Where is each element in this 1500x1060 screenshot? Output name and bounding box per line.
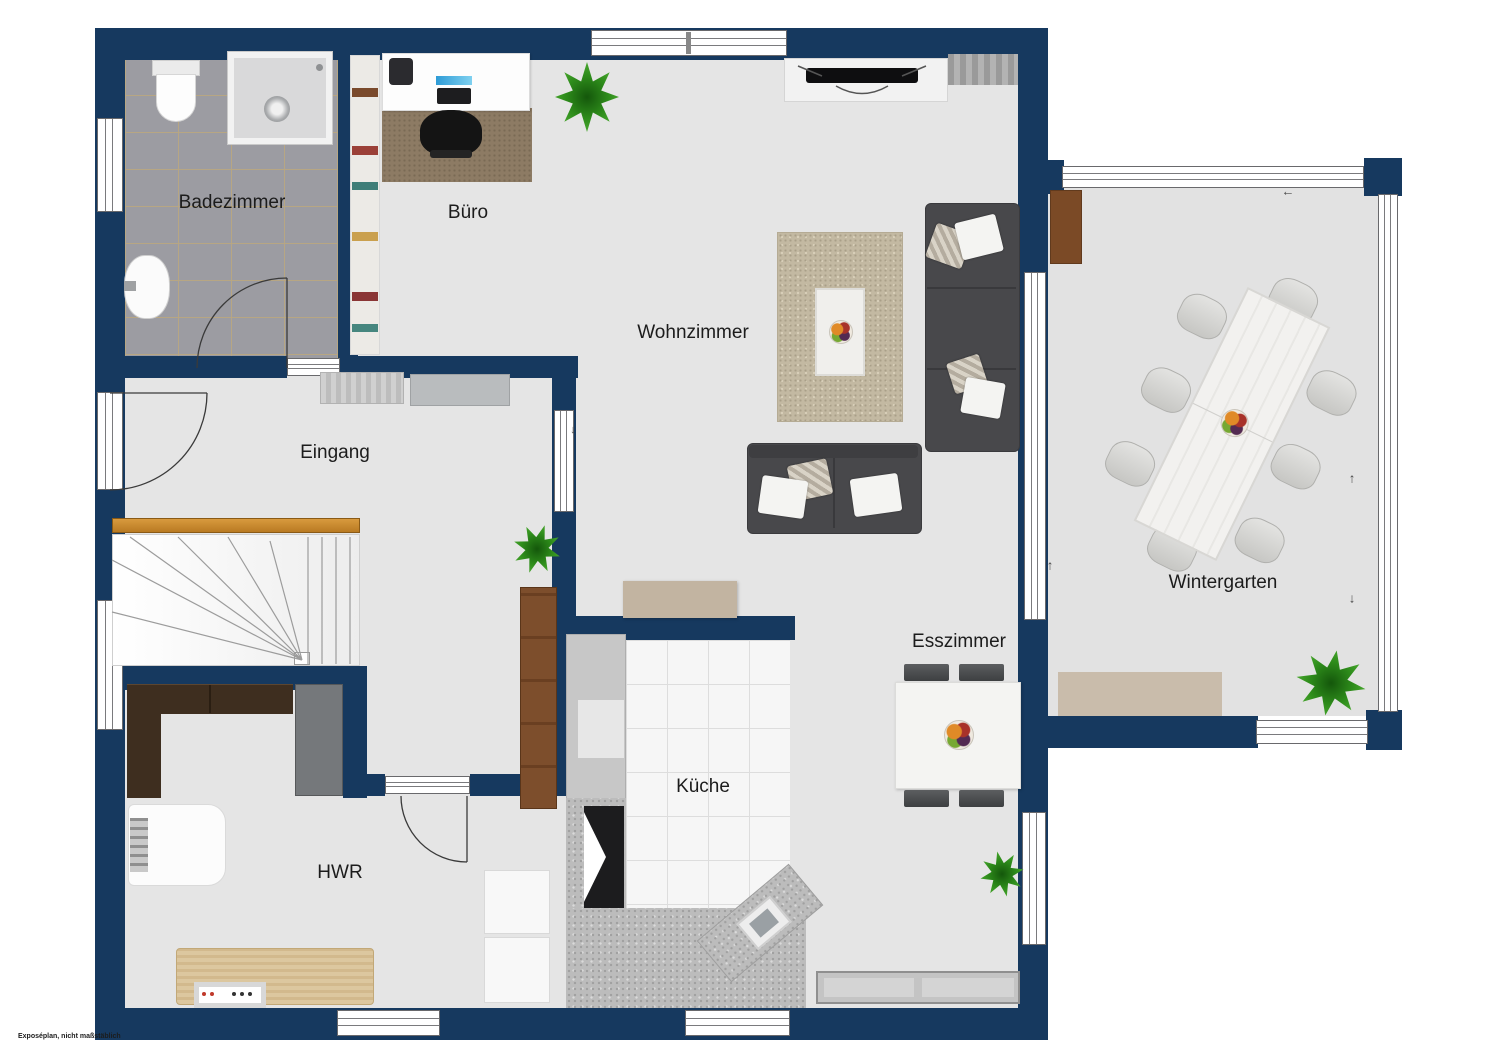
window (1256, 720, 1368, 744)
books (352, 146, 378, 155)
window-mullion (686, 32, 691, 54)
sofa-back (749, 445, 918, 458)
appliance-box (484, 937, 550, 1003)
wintergarten-corner-post (1364, 158, 1402, 196)
panel-dot-red (202, 992, 206, 996)
room-label-hwr: HWR (317, 862, 362, 884)
wall (125, 356, 287, 378)
tv-icon (806, 68, 918, 83)
toilet-bowl (156, 74, 196, 122)
books (352, 232, 378, 241)
staircase (112, 534, 360, 666)
footer-disclaimer: Exposéplan, nicht maßstäblich (18, 1033, 121, 1040)
sliding-door-window (1024, 272, 1046, 620)
books (352, 292, 378, 301)
pillow (850, 473, 903, 517)
wardrobe-wood (520, 587, 557, 809)
panel-dot (240, 992, 244, 996)
wall (343, 690, 367, 798)
fruit-bowl-icon (944, 720, 974, 750)
panel-dot-red (210, 992, 214, 996)
window (1378, 194, 1398, 712)
utility-cabinet-gray (295, 684, 343, 796)
wall (95, 1008, 1048, 1040)
dining-chair-icon (904, 790, 949, 807)
sink-tap (124, 281, 136, 291)
window (1062, 166, 1364, 188)
sliding-direction-arrow: ↓ (1349, 591, 1356, 606)
dining-chair-icon (959, 664, 1004, 681)
kitchen-cabinet-front (578, 700, 624, 758)
stair-newel (294, 652, 310, 665)
room-label-buero: Büro (448, 202, 488, 224)
entrance-door-opening (97, 392, 123, 490)
shower-head (264, 96, 290, 122)
handrail-wood (112, 518, 360, 533)
door-mat (1058, 672, 1222, 716)
sliding-direction-arrow: ↑ (1349, 471, 1356, 486)
books (352, 324, 378, 332)
room-label-kueche: Küche (676, 776, 730, 798)
utility-cabinet-dark (127, 714, 161, 798)
room-label-wintergarten: Wintergarten (1169, 572, 1278, 594)
sofa-seam (927, 287, 1016, 289)
hall-sideboard-striped (320, 372, 404, 404)
sideboard-beige (623, 581, 737, 618)
wall (367, 774, 385, 796)
washer-panel (130, 818, 148, 872)
panel-dot (248, 992, 252, 996)
room-label-wohnzimmer: Wohnzimmer (637, 322, 749, 344)
hall-sideboard (410, 374, 510, 406)
office-phone-icon (389, 58, 413, 85)
window (97, 118, 123, 212)
wall (1048, 716, 1258, 748)
window (685, 1010, 790, 1036)
cabinet-seam (209, 685, 211, 713)
sideboard-panel (922, 978, 1014, 997)
sliding-direction-arrow: ← (1282, 184, 1295, 199)
pillow (960, 377, 1006, 419)
dining-chair-icon (904, 664, 949, 681)
sofa-seam (833, 458, 835, 528)
shower-drain-dot (316, 64, 323, 71)
books (352, 182, 378, 190)
sliding-direction-arrow: ↑ (1047, 558, 1054, 573)
sideboard-panel (824, 978, 914, 997)
room-label-eingang: Eingang (300, 442, 370, 464)
room-label-badezimmer: Badezimmer (179, 192, 286, 214)
wall-shelf (948, 54, 1018, 85)
door-sill (385, 776, 470, 794)
panel-dot (232, 992, 236, 996)
keyboard-icon (437, 88, 471, 104)
pillow (758, 475, 809, 519)
room-label-esszimmer: Esszimmer (912, 631, 1006, 653)
office-chair-base (430, 150, 472, 158)
wintergarten-corner-post (1366, 710, 1402, 750)
conservatory-chair-icon (1266, 438, 1327, 495)
monitor-icon (436, 76, 472, 85)
conservatory-chair-icon (1230, 512, 1291, 569)
fruit-bowl-icon (829, 320, 853, 344)
floor-plan: ← ↑ ↓ ↑ ↓ Badezimmer Büro Wohnzimmer Ein… (0, 0, 1500, 1060)
door-direction-arrow: ↓ (570, 424, 576, 436)
window (1022, 812, 1046, 945)
potted-plant-icon (555, 62, 619, 132)
window (337, 1010, 440, 1036)
dining-chair-icon (959, 790, 1004, 807)
appliance-box (484, 870, 550, 934)
conservatory-chair-icon (1302, 364, 1363, 421)
books (352, 88, 378, 97)
conservatory-cabinet-wood (1050, 190, 1082, 264)
bookshelf-icon (350, 55, 380, 355)
